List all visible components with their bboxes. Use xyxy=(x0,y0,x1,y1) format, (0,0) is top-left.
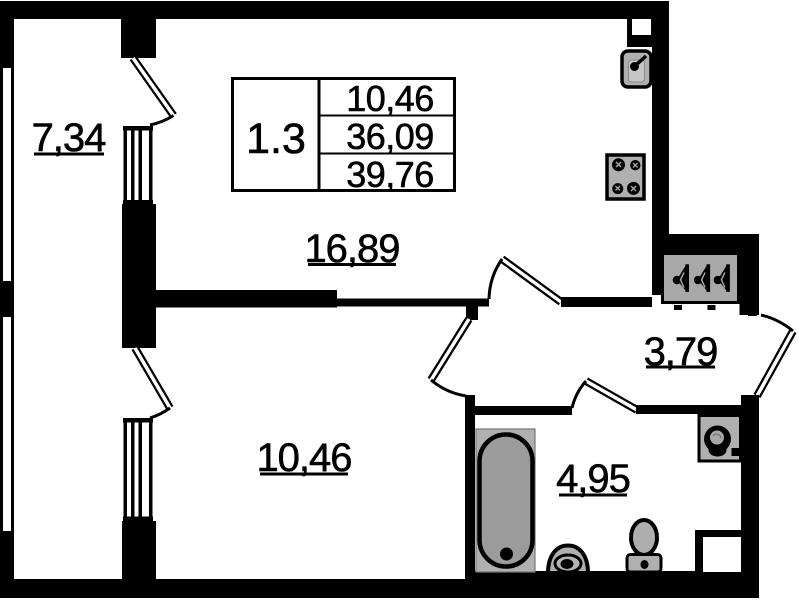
svg-text:39,76: 39,76 xyxy=(346,154,434,195)
svg-text:36,09: 36,09 xyxy=(346,116,434,157)
svg-text:1.3: 1.3 xyxy=(246,115,306,163)
svg-text:10,46: 10,46 xyxy=(346,78,434,119)
